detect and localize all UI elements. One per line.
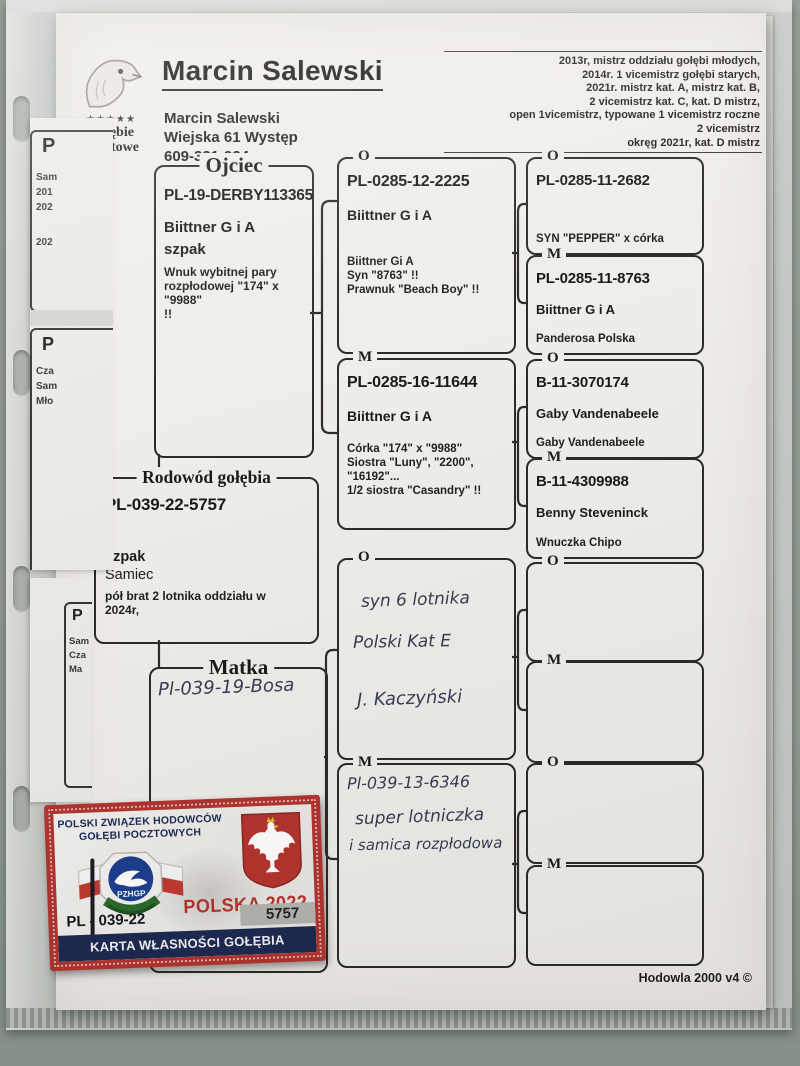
software-credit: Hodowla 2000 v4 © — [639, 971, 752, 985]
box-note: pół brat 2 lotnika oddziału w 2024r, — [105, 589, 305, 617]
pedigree-box-g3-1: O PL-0285-11-2682 SYN "PEPPER" x córka — [526, 157, 704, 255]
handwritten-note: super lotniczka — [355, 805, 485, 829]
ring-number: B-11-3070174 — [536, 374, 629, 391]
ring-number: PL-0285-11-2682 — [536, 172, 650, 189]
association-name: POLSKI ZWIĄZEK HODOWCÓW GOŁĘBI POCZTOWYC… — [55, 812, 224, 844]
box-legend: O — [542, 754, 564, 771]
background-sheet-1: P Sam 201 202 202 P Cza Sam Mło — [30, 118, 113, 570]
pedigree-box-g3-4: M B-11-4309988 Benny Steveninck Wnuczka … — [526, 458, 704, 559]
strain-name: Gaby Vandenabeele — [536, 406, 659, 421]
poland-eagle-emblem — [239, 810, 304, 895]
box-legend: M — [353, 754, 377, 771]
strain-name: Biittner G i A — [347, 207, 432, 223]
pedigree-box-g3-8: M — [526, 865, 704, 966]
ring-number: PL-19-DERBY113365 — [164, 187, 313, 205]
box-legend: O — [542, 148, 564, 165]
pedigree-box-g3-3: O B-11-3070174 Gaby Vandenabeele Gaby Va… — [526, 359, 704, 459]
binder-hole — [13, 350, 30, 396]
background-box: P Cza Sam Mło — [30, 328, 113, 570]
subject-legend: Rodowód gołębia — [136, 467, 277, 488]
ownership-card: POLSKI ZWIĄZEK HODOWCÓW GOŁĘBI POCZTOWYC… — [44, 795, 326, 971]
handwritten-ring: Pl-039-13-6346 — [347, 772, 470, 793]
handwritten-ring: Pl-039-19-Bosa — [158, 675, 295, 701]
box-legend: M — [542, 856, 566, 873]
ring-number: B-11-4309988 — [536, 473, 629, 490]
handwritten-note: Polski Kat E — [353, 631, 451, 653]
binder-hole — [13, 96, 30, 142]
background-box: P Sam 201 202 202 — [30, 130, 113, 312]
card-ring-number: 5757 — [240, 902, 316, 926]
handwritten-note: J. Kaczyński — [357, 686, 463, 711]
box-note: Gaby Vandenabeele — [536, 436, 645, 450]
svg-text:PZHGP: PZHGP — [117, 889, 146, 899]
box-note: Panderosa Polska — [536, 332, 635, 346]
box-note: SYN "PEPPER" x córka — [536, 232, 664, 246]
box-legend: O — [542, 350, 564, 367]
pedigree-box-g3-6: M — [526, 661, 704, 763]
binder-hole — [13, 786, 30, 832]
box-legend: O — [542, 553, 564, 570]
pedigree-box-father: Ojciec PL-19-DERBY113365 Biittner G i A … — [154, 165, 314, 458]
box-legend: M — [542, 449, 566, 466]
strain-name: Biittner G i A — [347, 408, 432, 424]
box-legend: O — [353, 148, 375, 165]
pedigree-box-g2-3: O syn 6 lotnika Polski Kat E J. Kaczyńsk… — [337, 558, 516, 760]
pedigree-box-g2-4: M Pl-039-13-6346 super lotniczka i samic… — [337, 763, 516, 968]
box-legend: M — [353, 349, 377, 366]
background-sheet-2: P Sam Cza Ma — [30, 578, 92, 802]
binder-hole — [13, 566, 30, 612]
strain-name: Biittner G i A — [536, 302, 615, 317]
ring-number: PL-0285-16-11644 — [347, 374, 477, 392]
box-legend: M — [542, 246, 566, 263]
eagle-shield-icon — [239, 810, 304, 890]
ownership-card-face: POLSKI ZWIĄZEK HODOWCÓW GOŁĘBI POCZTOWYC… — [53, 804, 316, 962]
sleeve-top-edge — [6, 0, 792, 12]
box-note: Wnuk wybitnej pary rozpłodowej "174" x "… — [164, 265, 302, 321]
father-legend: Ojciec — [199, 153, 268, 178]
ring-number: PL-0285-11-8763 — [536, 270, 650, 287]
sleeve-weld-edge — [6, 1008, 792, 1028]
card-ring-prefix: PL - 039-22 — [66, 911, 146, 931]
strain-name: Benny Steveninck — [536, 505, 648, 520]
pedigree-box-g3-7: O — [526, 763, 704, 864]
handwritten-note: i samica rozpłodowa — [349, 834, 503, 855]
pedigree-box-g2-1: O PL-0285-12-2225 Biittner G i A Biittne… — [337, 157, 516, 354]
pedigree-box-g3-5: O — [526, 562, 704, 662]
ring-number: PL-0285-12-2225 — [347, 173, 469, 191]
background-box: P Sam Cza Ma — [64, 602, 92, 788]
strain-name: Biittner G i A — [164, 219, 255, 236]
handwritten-note: syn 6 lotnika — [361, 588, 471, 612]
box-note: Biittner Gi A Syn "8763" !! Prawnuk "Bea… — [347, 255, 505, 297]
photo-scene: 2013r, mistrz oddziału gołębi młodych, 2… — [0, 0, 800, 1066]
pedigree-box-g2-2: M PL-0285-16-11644 Biittner G i A Córka … — [337, 358, 516, 530]
box-legend: O — [353, 549, 375, 566]
box-note: Wnuczka Chipo — [536, 536, 622, 550]
ring-number: PL-039-22-5757 — [105, 495, 226, 515]
pedigree-box-g3-2: M PL-0285-11-8763 Biittner G i A Pandero… — [526, 255, 704, 355]
pedigree-box-subject: Rodowód gołębia PL-039-22-5757 szpak Sam… — [94, 477, 319, 644]
box-legend: M — [542, 652, 566, 669]
sheet-shadow — [30, 310, 113, 326]
color-label: szpak — [164, 241, 206, 258]
box-note: Córka "174" x "9988" Siostra "Luny", "22… — [347, 442, 505, 498]
